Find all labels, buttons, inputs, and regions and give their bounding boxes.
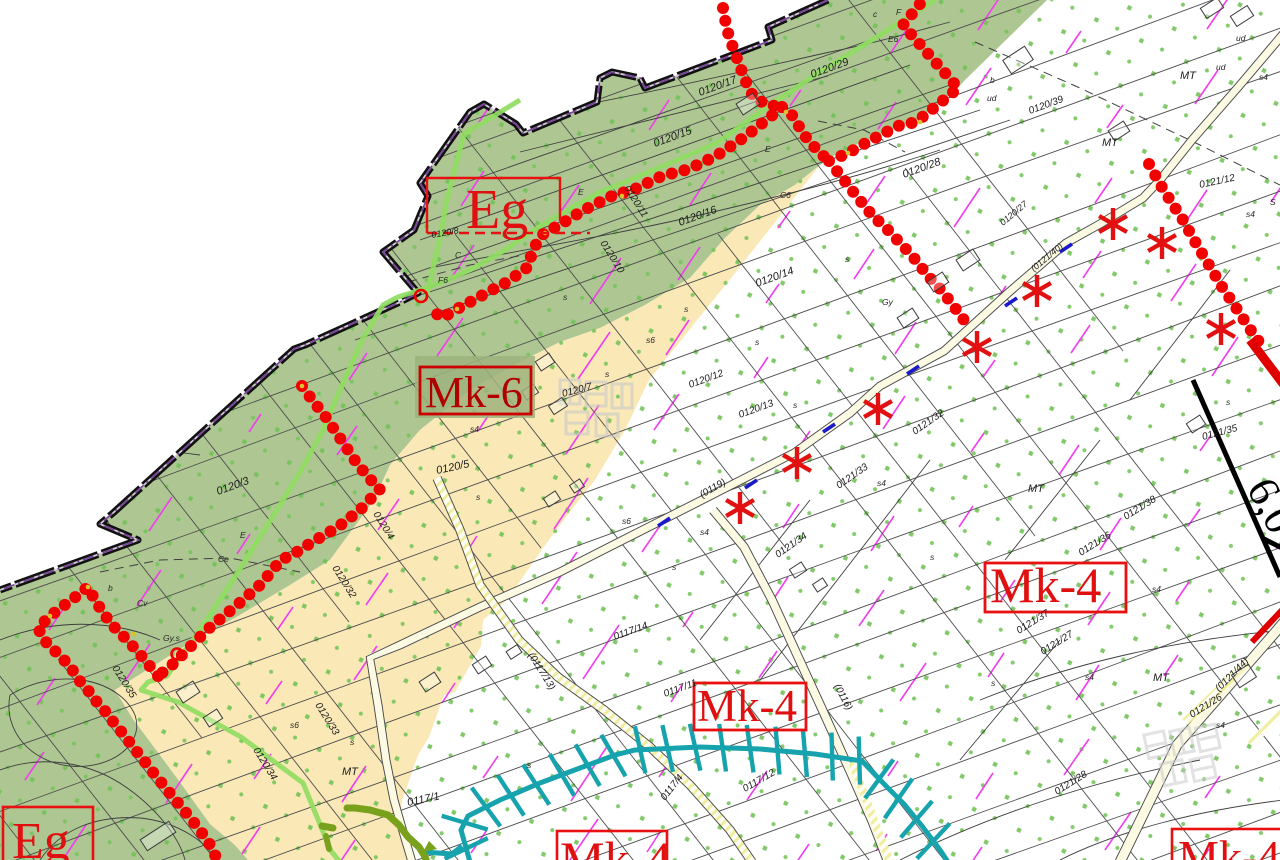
svg-text:C: C [455, 250, 462, 260]
svg-text:Mk-4: Mk-4 [560, 831, 671, 860]
svg-text:E: E [240, 530, 246, 540]
svg-text:Mk-4: Mk-4 [697, 681, 797, 731]
svg-text:MT: MT [342, 766, 359, 778]
svg-text:E: E [578, 187, 584, 197]
svg-text:b: b [990, 75, 995, 85]
svg-text:s6: s6 [622, 516, 631, 526]
svg-text:s4: s4 [877, 478, 886, 488]
svg-text:ud: ud [1236, 33, 1246, 43]
svg-text:MT: MT [1102, 137, 1119, 149]
svg-text:MT: MT [1180, 70, 1197, 82]
svg-text:Mk-4: Mk-4 [1178, 831, 1280, 860]
svg-text:s6: s6 [290, 720, 299, 730]
svg-text:s4: s4 [470, 424, 479, 434]
svg-text:MT: MT [1153, 672, 1170, 684]
svg-text:Cv: Cv [137, 598, 148, 608]
svg-text:ud: ud [1216, 62, 1226, 72]
svg-text:Gy.s: Gy.s [163, 633, 181, 643]
svg-text:Eg: Eg [12, 813, 70, 860]
svg-text:s4: s4 [700, 527, 709, 537]
svg-text:s4: s4 [1085, 672, 1094, 682]
svg-text:b: b [108, 583, 113, 593]
svg-text:F6: F6 [438, 275, 448, 285]
svg-text:s4: s4 [1152, 584, 1161, 594]
svg-text:Mk-4: Mk-4 [990, 557, 1101, 613]
svg-text:s4: s4 [1246, 209, 1255, 219]
svg-text:Eg: Eg [466, 179, 528, 241]
svg-text:Ce: Ce [218, 554, 229, 564]
svg-text:S: S [1270, 197, 1276, 207]
svg-text:E: E [765, 144, 771, 154]
svg-text:E6: E6 [888, 34, 899, 44]
svg-text:s4: s4 [1216, 720, 1225, 730]
svg-text:s6: s6 [646, 335, 655, 345]
svg-text:Gy: Gy [882, 297, 894, 307]
svg-text:MT: MT [1028, 483, 1045, 495]
svg-text:C6: C6 [780, 190, 791, 200]
svg-text:ud: ud [987, 93, 997, 103]
svg-text:Mk-6: Mk-6 [425, 368, 523, 417]
svg-text:s4: s4 [1259, 72, 1268, 82]
svg-text:F: F [896, 7, 902, 17]
